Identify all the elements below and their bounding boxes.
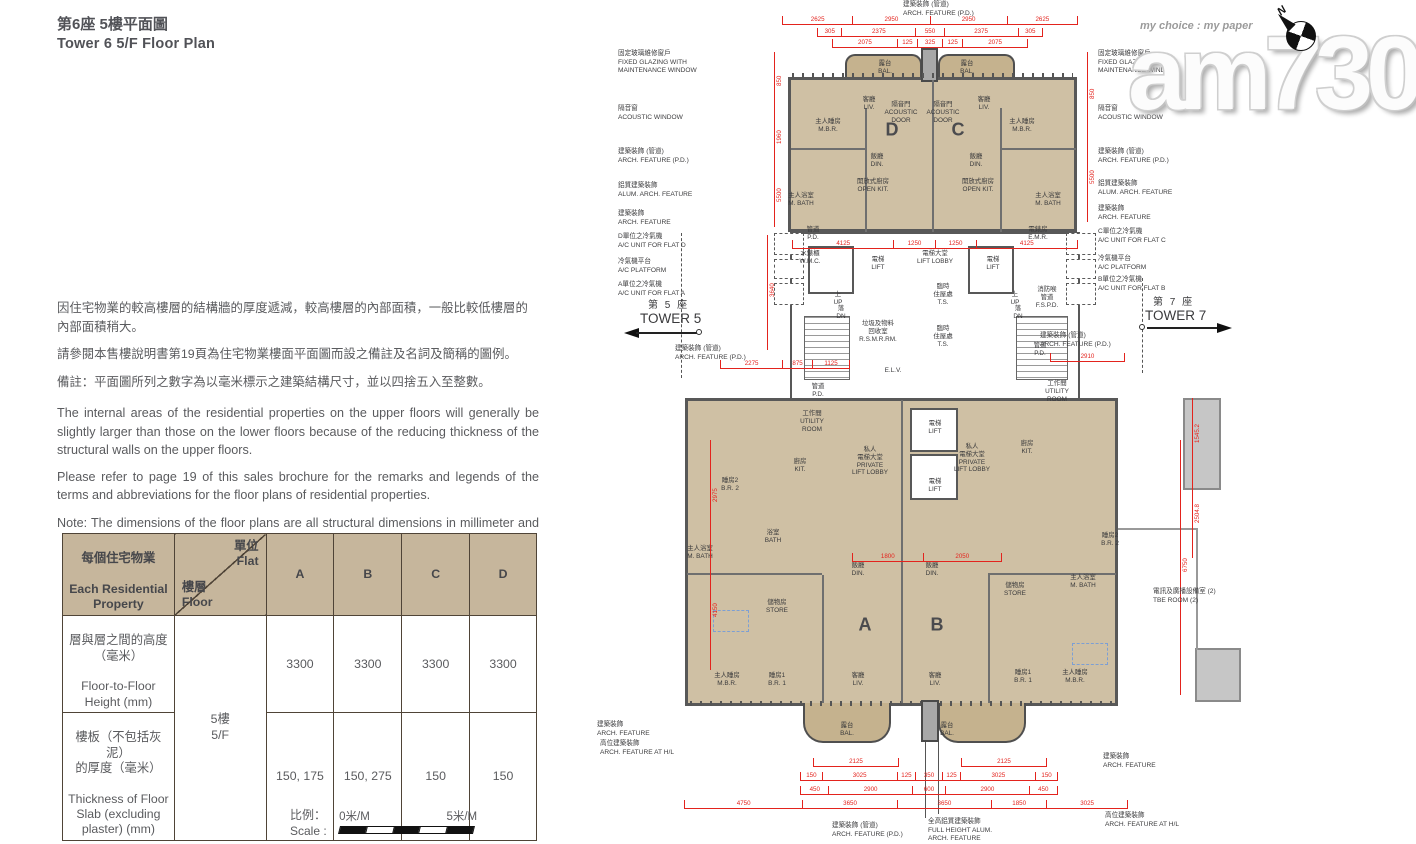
room-label: 露台BAL. [840, 722, 854, 738]
unit-letter-d: D [886, 120, 899, 141]
dimension-value: 150 [1036, 772, 1058, 781]
unit-letter-b: B [931, 615, 944, 636]
room-label: 睡房2B.R. 2 [721, 477, 739, 493]
dimension-value: 2125 [813, 758, 899, 767]
room-label: E.L.V. [885, 367, 902, 375]
room-label: 飯廳DIN. [970, 153, 983, 169]
callout-label: 冷氣機平台 A/C PLATFORM [1098, 255, 1146, 272]
ac-platform-box [1066, 283, 1096, 305]
dimension-value: 2625 [1008, 16, 1078, 25]
dimension-value: 2075 [832, 39, 898, 48]
callout-label: 建築裝飾 (管道) ARCH. FEATURE (P.D.) [1040, 332, 1111, 349]
dimension-vertical: 29754150 [710, 440, 719, 670]
row-label-slab-thickness: 樓板（不包括灰泥） 的厚度（毫米） Thickness of Floor Sla… [63, 712, 175, 840]
ac-platform-box [774, 283, 804, 305]
room-label: 飯廳DIN. [871, 153, 884, 169]
room-label: 水錶櫃W.M.C. [800, 250, 821, 266]
note-paragraph-zh: 備註：平面圖所列之數字為以毫米標示之建築結構尺寸，並以四捨五入至整數。 [57, 373, 539, 392]
dimension-value: 2375 [945, 28, 1019, 37]
partition-wall [988, 575, 990, 703]
callout-label: 建築裝飾 (管道) ARCH. FEATURE (P.D.) [675, 345, 746, 362]
callout-label: 電訊及廣播設備室 (2) TBE ROOM (2) [1153, 588, 1216, 605]
note-paragraph-en: Please refer to page 19 of this sales br… [57, 468, 539, 505]
callout-label: 建築裝飾 ARCH. FEATURE [1103, 753, 1156, 770]
tower-5-arrow-line [636, 332, 698, 334]
partition-wall [791, 148, 865, 150]
room-label: 消防喉 管道F.S.P.D. [1036, 286, 1059, 309]
tower-7-label-zh: 第 7 座 [1153, 293, 1295, 308]
dimension-vertical: 85019605500 [774, 52, 783, 227]
room-label: 睡房2B.R. 2 [1101, 532, 1119, 548]
dimension-vertical: 1545.22504.8 [1192, 398, 1201, 558]
dimension-value: 3025 [961, 772, 1036, 781]
tower-5-arrow-dot [696, 329, 702, 335]
dimension-value: 125 [943, 39, 963, 48]
floor-plan: 第 5 座 TOWER 5 第 7 座 TOWER 7 露台BAL.露台BAL.… [570, 0, 1416, 844]
cell-height-a: 3300 [266, 615, 334, 712]
partition-wall [1000, 108, 1002, 232]
dimension-value: 4750 [684, 800, 803, 809]
room-label: 電梯LIFT [928, 478, 941, 494]
room-label: 客廳LIV. [863, 96, 876, 112]
callout-label: 固定玻璃維修窗戶 FIXED GLAZING WITH MAINTENANCE … [1098, 50, 1177, 76]
note-paragraph-zh: 請參閱本售樓說明書第19頁為住宅物業樓面平面圖而設之備註及名詞及簡稱的圖例。 [57, 345, 539, 364]
residential-spec-table: 每個住宅物業 Each Residential Property 單位 Flat… [62, 533, 537, 841]
cell-height-c: 3300 [402, 615, 470, 712]
scale-label-en: Scale : [290, 824, 327, 838]
dimension-row: 4125125012504125 [792, 240, 1078, 249]
cell-slab-d: 150 [470, 712, 537, 840]
dimension-value: 3025 [1047, 800, 1128, 809]
highlight-box [1072, 643, 1108, 665]
note-paragraph-en: The internal areas of the residential pr… [57, 404, 539, 459]
dimension-value: 600 [913, 786, 947, 795]
callout-label: 高位建築裝飾 ARCH. FEATURE AT H/L [600, 740, 674, 757]
dimension-row: 2910 [1050, 353, 1125, 362]
dimension-value: 2625 [782, 16, 853, 25]
dimension-value: 2910 [1050, 353, 1125, 362]
callout-label: 建築裝飾 (管道) ARCH. FEATURE (P.D.) [618, 148, 689, 165]
room-label: 睡房1B.R. 1 [1014, 669, 1032, 685]
table-header-flat-b: B [334, 534, 402, 616]
dimension-value: 5500 [776, 193, 783, 202]
dimension-value: 6750 [1182, 563, 1189, 572]
room-label: 廚房KIT. [794, 458, 807, 474]
dimension-value: 2504.8 [1194, 514, 1201, 523]
ac-platform-box [1066, 259, 1096, 279]
room-label: 電梯大堂LIFT LOBBY [917, 250, 953, 266]
row-label-zh: 層與層之間的高度 （毫米） [69, 633, 167, 662]
note-paragraph-zh: 因住宅物業的較高樓層的結構牆的厚度遞減，較高樓層的內部面積，一般比較低樓層的內部… [57, 299, 539, 336]
room-label: 工作間UTILITY ROOM [1045, 380, 1069, 403]
room-label: 垃圾及物料 回收室R.S.M.R.RM. [859, 320, 897, 343]
room-label: 主人浴室M. BATH [1035, 192, 1061, 208]
callout-label: 鋁質建築裝飾 ALUM. ARCH. FEATURE [1098, 180, 1172, 197]
dimension-value: 2375 [842, 28, 916, 37]
room-label: 主人浴室M. BATH [788, 192, 814, 208]
dimension-vertical: 8505500 [1087, 52, 1096, 222]
callout-label: 建築裝飾 (管道) ARCH. FEATURE (P.D.) [1098, 148, 1169, 165]
room-label: 主人睡房M.B.R. [815, 118, 841, 134]
dimension-value: 2075 [963, 39, 1028, 48]
room-label: 主人浴室M. BATH [687, 545, 713, 561]
room-label: 私人 電梯大堂PRIVATE LIFT LOBBY [954, 443, 990, 474]
window-strip-bottom [690, 701, 1116, 706]
dimension-value: 875 [783, 360, 813, 369]
partition-wall [1000, 148, 1076, 150]
dimension-row: 15030251253501253025150 [800, 772, 1058, 781]
page-title-zh: 第6座 5樓平面圖 [57, 13, 215, 34]
tower-7-marker: 第 7 座 TOWER 7 [1145, 293, 1295, 323]
dimension-value: 450 [800, 786, 829, 795]
callout-label: 建築裝飾 ARCH. FEATURE [597, 721, 650, 738]
dimension-value: 125 [943, 772, 962, 781]
room-label: 飯廳DIN. [926, 562, 939, 578]
dimension-value: 3025 [823, 772, 898, 781]
dimension-value: 2975 [712, 493, 719, 502]
room-label: 客廳LIV. [929, 672, 942, 688]
room-label: 主人睡房M.B.R. [714, 672, 740, 688]
dimension-row: 30523755502375305 [817, 28, 1043, 37]
room-label: 廚房KIT. [1021, 440, 1034, 456]
dimension-value: 2900 [946, 786, 1029, 795]
dimension-value: 1545.2 [1194, 434, 1201, 443]
callout-label: 高位建築裝飾 ARCH. FEATURE AT H/L [1105, 812, 1179, 829]
scale-bar: 比例： Scale : 0米/M 5米/M [290, 808, 477, 839]
tower-5-marker: 第 5 座 TOWER 5 [578, 296, 728, 326]
dimension-value: 3650 [803, 800, 897, 809]
tower-7-arrow [1217, 323, 1232, 333]
room-label: 電梯LIFT [986, 256, 999, 272]
scale-start-label: 0米/M [339, 808, 370, 824]
table-diagonal-header: 單位 Flat 樓層 Floor [174, 534, 266, 616]
dimension-value: 1800 [852, 553, 924, 562]
room-label: 露台BAL. [940, 722, 954, 738]
room-label: 主人浴室M. BATH [1070, 574, 1096, 590]
room-label: 睡房1B.R. 1 [768, 672, 786, 688]
room-label: 管道P.D. [812, 383, 825, 399]
room-label: 電梯LIFT [928, 420, 941, 436]
room-label: 儲物房STORE [766, 599, 788, 615]
unit-letter-a: A [859, 615, 872, 636]
scale-label: 比例： Scale : [290, 808, 327, 839]
callout-label: 建築裝飾 (管道) ARCH. FEATURE (P.D.) [832, 822, 903, 839]
table-row: 層與層之間的高度 （毫米） Floor-to-Floor Height (mm)… [63, 615, 537, 712]
room-label: 私人 電梯大堂PRIVATE LIFT LOBBY [852, 446, 888, 477]
room-label: 主人睡房M.B.R. [1062, 669, 1088, 685]
room-label: 落DN [1013, 305, 1022, 321]
room-label: 飯廳DIN. [852, 562, 865, 578]
partition-wall [865, 108, 867, 232]
callout-label: 冷氣機平台 A/C PLATFORM [618, 258, 666, 275]
dimension-value: 3640 [769, 288, 776, 297]
callout-label: C單位之冷氣機 A/C UNIT FOR FLAT C [1098, 228, 1166, 245]
room-label: 露台BAL. [960, 60, 974, 76]
callout-label: A單位之冷氣機 A/C UNIT FOR FLAT A [618, 281, 685, 298]
dimension-value: 4125 [977, 240, 1078, 249]
dimension-value: 1850 [992, 800, 1047, 809]
unit-letter-c: C [952, 120, 965, 141]
row-label-en: Thickness of Floor Slab (excluding plast… [68, 792, 168, 837]
page-title: 第6座 5樓平面圖 Tower 6 5/F Floor Plan [57, 13, 215, 52]
callout-label: 建築裝飾 ARCH. FEATURE [1098, 205, 1151, 222]
callout-label: 建築裝飾 (管道) ARCH. FEATURE (P.D.) [903, 1, 974, 18]
page-title-en: Tower 6 5/F Floor Plan [57, 36, 215, 52]
dimension-row: 18002050 [852, 553, 1002, 562]
arch-feature-block [1195, 648, 1241, 702]
dimension-value: 350 [916, 772, 942, 781]
tower-7-label-en: TOWER 7 [1145, 308, 1295, 323]
dimension-value: 1250 [894, 240, 935, 249]
dimension-value: 2125 [961, 758, 1047, 767]
table-flat-label: 單位 Flat [234, 539, 259, 569]
dimension-value: 850 [1089, 90, 1096, 99]
window-strip-top [792, 73, 1073, 78]
dimension-row: 20751253251252075 [832, 39, 1028, 48]
room-label: 客廳LIV. [852, 672, 865, 688]
table-header-flat-a: A [266, 534, 334, 616]
dimension-row: 2125 [961, 758, 1047, 767]
room-label: 儲物房STORE [1004, 582, 1026, 598]
dimension-value: 1960 [776, 135, 783, 144]
room-label: 臨時 住屋處T.S. [933, 283, 952, 306]
dimension-value: 850 [776, 77, 783, 86]
table-corner-en: Each Residential Property [69, 582, 167, 611]
scale-bar-segments [338, 826, 475, 834]
tower-7-arrow-dot [1139, 324, 1145, 330]
table-corner-header: 每個住宅物業 Each Residential Property [63, 534, 175, 616]
partition-wall [901, 400, 903, 703]
callout-label: D單位之冷氣機 A/C UNIT FOR FLAT D [618, 233, 686, 250]
arch-feature-shaft-bottom [921, 700, 939, 742]
dimension-value: 125 [898, 772, 917, 781]
scale-end-label: 5米/M [446, 808, 477, 824]
room-label: 臨時 住屋處T.S. [933, 325, 952, 348]
table-header-flat-c: C [402, 534, 470, 616]
dimension-value: 305 [1019, 28, 1043, 37]
partition-wall [687, 573, 822, 575]
row-label-zh: 樓板（不包括灰泥） 的厚度（毫米） [75, 730, 161, 775]
callout-label: 隔音窗 ACOUSTIC WINDOW [1098, 105, 1163, 122]
tower-5-label-zh: 第 5 座 [648, 296, 728, 311]
callout-label: 固定玻璃維修窗戶 FIXED GLAZING WITH MAINTENANCE … [618, 50, 697, 76]
table-corner-zh: 每個住宅物業 [82, 551, 156, 565]
room-label: 工作間UTILITY ROOM [800, 410, 824, 433]
dimension-value: 4150 [712, 608, 719, 617]
room-label: 主人睡房M.B.R. [1009, 118, 1035, 134]
scale-label-zh: 比例： [290, 808, 326, 822]
row-label-floor-height: 層與層之間的高度 （毫米） Floor-to-Floor Height (mm) [63, 615, 175, 712]
dimension-value: 325 [918, 39, 943, 48]
dimension-vertical: 3640 [767, 235, 776, 350]
scale-bar-graphic: 0米/M 5米/M [339, 808, 477, 834]
tower-5-label-en: TOWER 5 [640, 311, 728, 326]
dimension-value: 550 [916, 28, 944, 37]
dimension-value: 150 [800, 772, 823, 781]
cell-height-d: 3300 [470, 615, 537, 712]
table-header-flat-d: D [470, 534, 537, 616]
dimension-value: 5500 [1089, 175, 1096, 184]
dimension-value: 3650 [898, 800, 992, 809]
callout-label: 全高鋁質建築裝飾 FULL HEIGHT ALUM. ARCH. FEATURE [928, 818, 992, 844]
room-label: 露台BAL. [878, 60, 892, 76]
room-label: 開放式廚房OPEN KIT. [962, 178, 994, 194]
room-label: 浴室BATH [765, 529, 782, 545]
room-label: 落DN [836, 305, 845, 321]
notes-block: 因住宅物業的較高樓層的結構牆的厚度遞減，較高樓層的內部面積，一般比較低樓層的內部… [57, 299, 539, 559]
dimension-value: 2050 [924, 553, 1002, 562]
dimension-row: 2125 [813, 758, 899, 767]
tower-7-arrow-line [1147, 327, 1219, 329]
dimension-value: 125 [898, 39, 918, 48]
room-label: 開放式廚房OPEN KIT. [857, 178, 889, 194]
dimension-vertical: 6750 [1180, 440, 1189, 695]
dimension-value: 4125 [792, 240, 894, 249]
staircase [804, 316, 850, 380]
callout-label: 隔音窗 ACOUSTIC WINDOW [618, 105, 683, 122]
room-label: 客廳LIV. [978, 96, 991, 112]
dimension-value: 1250 [936, 240, 977, 249]
floor-value-cell: 5樓 5/F [174, 615, 266, 840]
dimension-value: 305 [817, 28, 842, 37]
dimension-value: 2900 [829, 786, 912, 795]
callout-label: 建築裝飾 ARCH. FEATURE [618, 210, 671, 227]
partition-wall [988, 573, 1116, 575]
partition-wall [822, 575, 824, 703]
dimension-value: 450 [1030, 786, 1058, 795]
row-label-en: Floor-to-Floor Height (mm) [81, 679, 155, 708]
table-floor-label: 樓層 Floor [182, 580, 213, 610]
room-label: 電梯LIFT [871, 256, 884, 272]
callout-label: B單位之冷氣機 A/C UNIT FOR FLAT B [1098, 276, 1165, 293]
callout-label: 鋁質建築裝飾 ALUM. ARCH. FEATURE [618, 182, 692, 199]
dimension-row: 47503650365018503025 [684, 800, 1128, 809]
dimension-value: 1125 [813, 360, 850, 369]
cell-height-b: 3300 [334, 615, 402, 712]
dimension-row: 45029006002900450 [800, 786, 1058, 795]
